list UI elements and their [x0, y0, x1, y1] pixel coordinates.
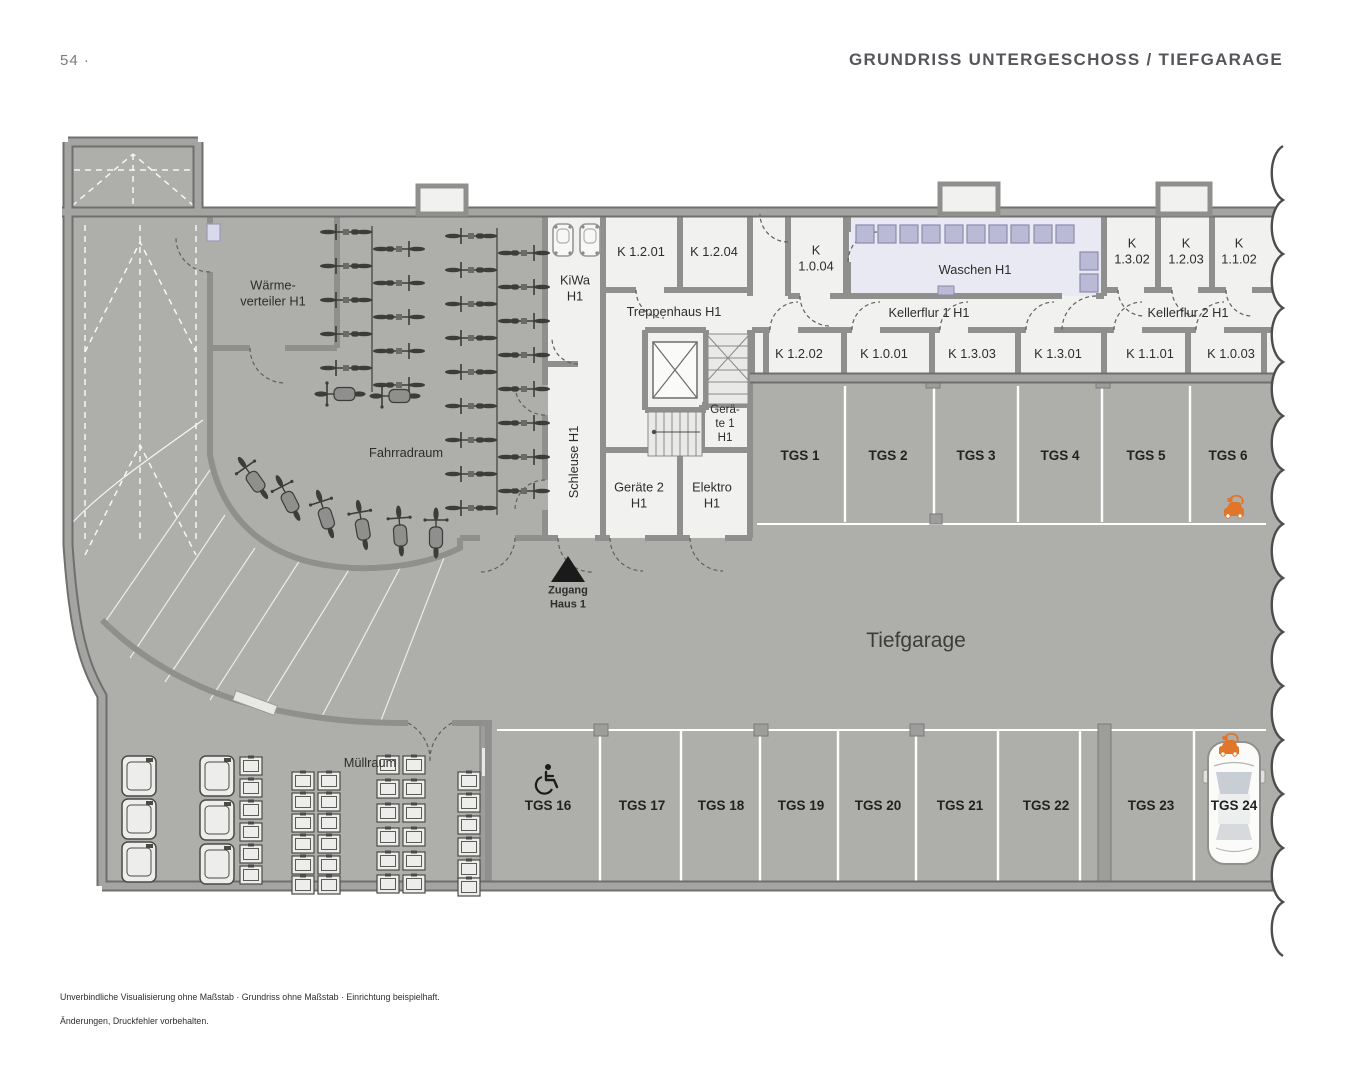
- floorplan-page: 54 · GRUNDRISS UNTERGESCHOSS / TIEFGARAG…: [0, 0, 1359, 1080]
- parking-space-label-tgs-20: TGS 20: [855, 798, 902, 814]
- wall-door-marker: [207, 224, 220, 241]
- floor-plan-svg: [0, 0, 1359, 1080]
- room-label-muellraum: Müllraum: [344, 755, 397, 771]
- room-label-elektro: Elektro H1: [692, 479, 732, 510]
- parking-space-label-tgs-6: TGS 6: [1208, 448, 1247, 464]
- room-label-fahrradraum: Fahrradraum: [369, 445, 443, 461]
- room-label-treppenhaus: Treppenhaus H1: [627, 304, 722, 320]
- parking-space-label-tgs-4: TGS 4: [1040, 448, 1079, 464]
- page-title: GRUNDRISS UNTERGESCHOSS / TIEFGARAGE: [849, 50, 1283, 70]
- room-label-k-1-0-04: K 1.0.04: [798, 242, 834, 273]
- parking-space-label-tgs-21: TGS 21: [937, 798, 984, 814]
- room-label-geraete-2: Geräte 2 H1: [614, 479, 664, 510]
- parking-space-label-tgs-3: TGS 3: [956, 448, 995, 464]
- parking-space-label-tgs-18: TGS 18: [698, 798, 745, 814]
- parking-space-label-tgs-2: TGS 2: [868, 448, 907, 464]
- room-label-k-1-1-01: K 1.1.01: [1126, 346, 1174, 362]
- parking-space-label-tgs-22: TGS 22: [1023, 798, 1070, 814]
- parking-space-label-tgs-17: TGS 17: [619, 798, 666, 814]
- parking-space-label-tgs-24: TGS 24: [1211, 798, 1258, 814]
- room-label-geraete-1: Gerä- te 1 H1: [710, 403, 739, 445]
- room-label-k-1-2-02: K 1.2.02: [775, 346, 823, 362]
- room-label-schleuse: Schleuse H1: [566, 426, 582, 499]
- parking-space-label-tgs-19: TGS 19: [778, 798, 825, 814]
- room-label-k-1-0-03: K 1.0.03: [1207, 346, 1255, 362]
- disclaimer-line-2: Änderungen, Druckfehler vorbehalten.: [60, 1016, 209, 1026]
- disclaimer-line-1: Unverbindliche Visualisierung ohne Maßst…: [60, 992, 440, 1002]
- room-label-tiefgarage: Tiefgarage: [866, 628, 966, 654]
- room-label-k-1-0-01: K 1.0.01: [860, 346, 908, 362]
- room-label-k-1-2-04: K 1.2.04: [690, 244, 738, 260]
- room-label-k-1-3-03: K 1.3.03: [948, 346, 996, 362]
- room-label-waermeverteiler: Wärme- verteiler H1: [240, 277, 305, 308]
- room-label-kellerflur-2: Kellerflur 2 H1: [1147, 305, 1228, 321]
- room-label-kiwa: KiWa H1: [560, 272, 590, 303]
- page-number: 54 ·: [60, 52, 90, 69]
- room-label-kellerflur-1: Kellerflur 1 H1: [888, 305, 969, 321]
- entrance-label-zugang-haus-1: Zugang Haus 1: [548, 584, 588, 613]
- parking-space-label-tgs-5: TGS 5: [1126, 448, 1165, 464]
- parking-space-label-tgs-1: TGS 1: [780, 448, 819, 464]
- room-label-k-1-3-02: K 1.3.02: [1114, 235, 1150, 266]
- room-label-k-1-2-03: K 1.2.03: [1168, 235, 1204, 266]
- room-label-k-1-3-01: K 1.3.01: [1034, 346, 1082, 362]
- elevator: [653, 342, 697, 398]
- room-label-waschen: Waschen H1: [939, 262, 1012, 278]
- room-label-k-1-1-02: K 1.1.02: [1221, 235, 1257, 266]
- parking-space-label-tgs-16: TGS 16: [525, 798, 572, 814]
- torn-edge: [1272, 146, 1320, 956]
- room-label-k-1-2-01: K 1.2.01: [617, 244, 665, 260]
- parking-space-label-tgs-23: TGS 23: [1128, 798, 1175, 814]
